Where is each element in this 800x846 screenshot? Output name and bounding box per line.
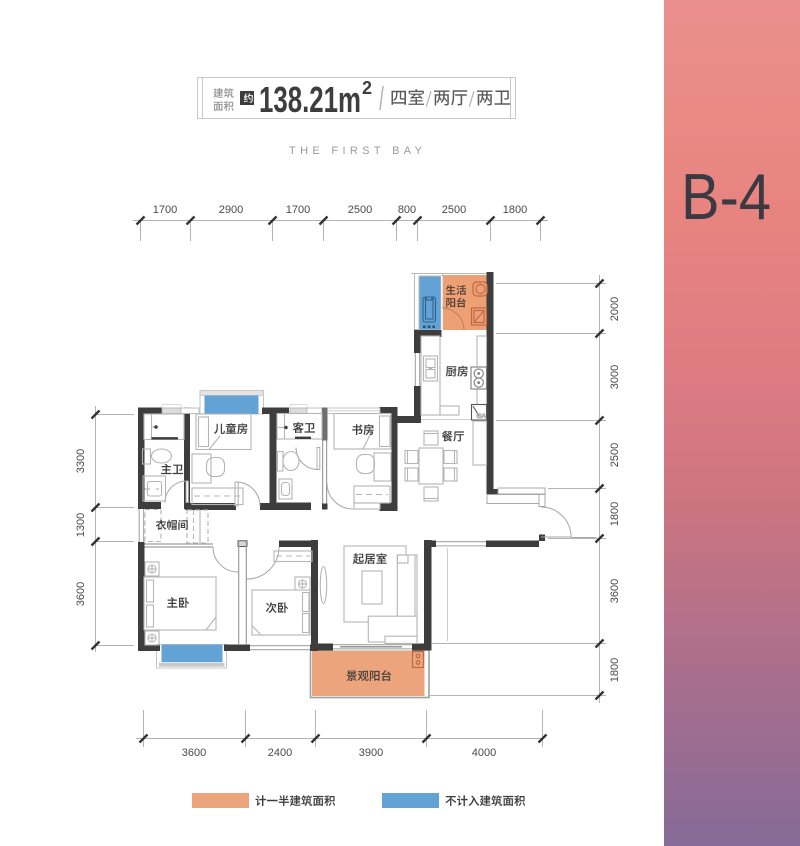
svg-text:1800: 1800 [609,658,621,682]
svg-text:2000: 2000 [609,297,621,321]
svg-text:2900: 2900 [219,204,243,216]
svg-text:1800: 1800 [609,502,621,526]
svg-text:3900: 3900 [359,747,383,759]
svg-text:3300: 3300 [75,449,87,473]
svg-text:2: 2 [362,78,372,98]
svg-text:2500: 2500 [442,204,466,216]
svg-text:800: 800 [398,204,416,216]
svg-text:2500: 2500 [348,204,372,216]
svg-text:3600: 3600 [182,747,206,759]
svg-text:1700: 1700 [153,204,177,216]
svg-text:1800: 1800 [503,204,527,216]
svg-text:3600: 3600 [609,579,621,603]
svg-text:3000: 3000 [609,365,621,389]
svg-text:2400: 2400 [268,747,292,759]
svg-text:2500: 2500 [609,443,621,467]
svg-text:1700: 1700 [286,204,310,216]
svg-text:138.21m: 138.21m [259,79,361,120]
svg-text:1300: 1300 [75,513,87,537]
svg-text:4000: 4000 [472,747,496,759]
svg-text:B-4: B-4 [681,160,771,233]
svg-text:3600: 3600 [75,582,87,606]
